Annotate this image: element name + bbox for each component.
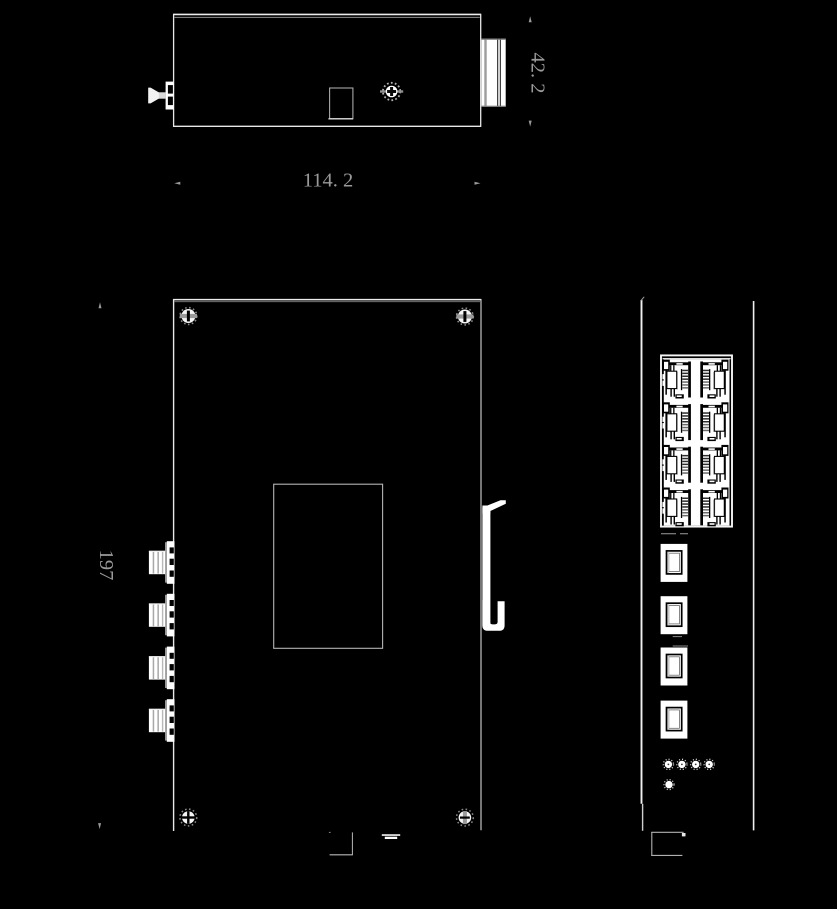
svg-text:42. 2: 42. 2 xyxy=(527,53,549,94)
svg-text:114. 2: 114. 2 xyxy=(303,170,354,192)
svg-text:197: 197 xyxy=(95,550,117,581)
